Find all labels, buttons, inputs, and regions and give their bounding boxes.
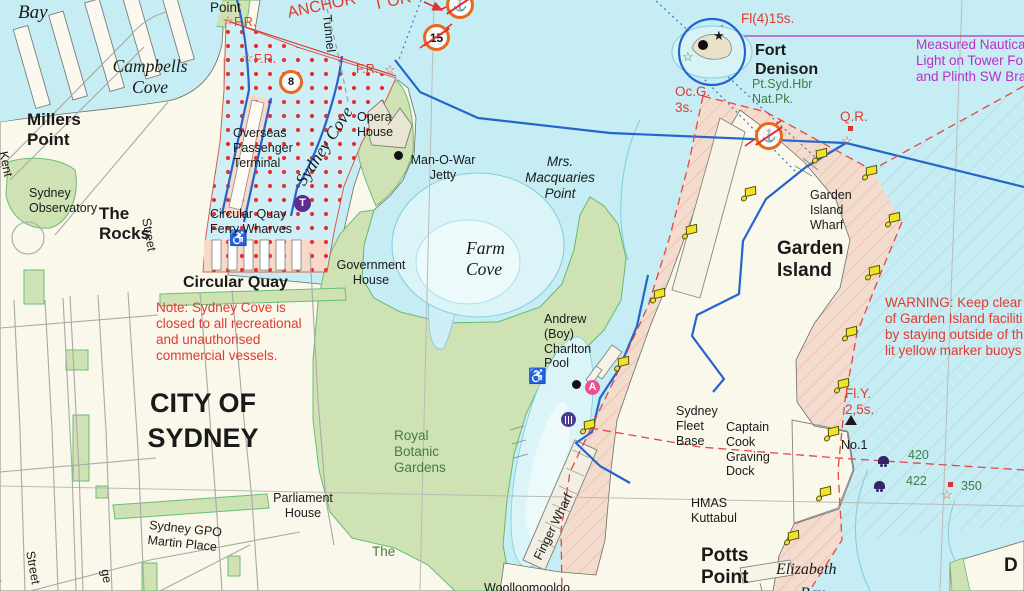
chart-canvas (0, 0, 1024, 591)
farm-cove-shallow (392, 173, 564, 317)
nautical-chart: ☆☆☆☆☆☆★TA815⚓⚓♿♿ BayPointT ORANCHORF.R.F… (0, 0, 1024, 591)
